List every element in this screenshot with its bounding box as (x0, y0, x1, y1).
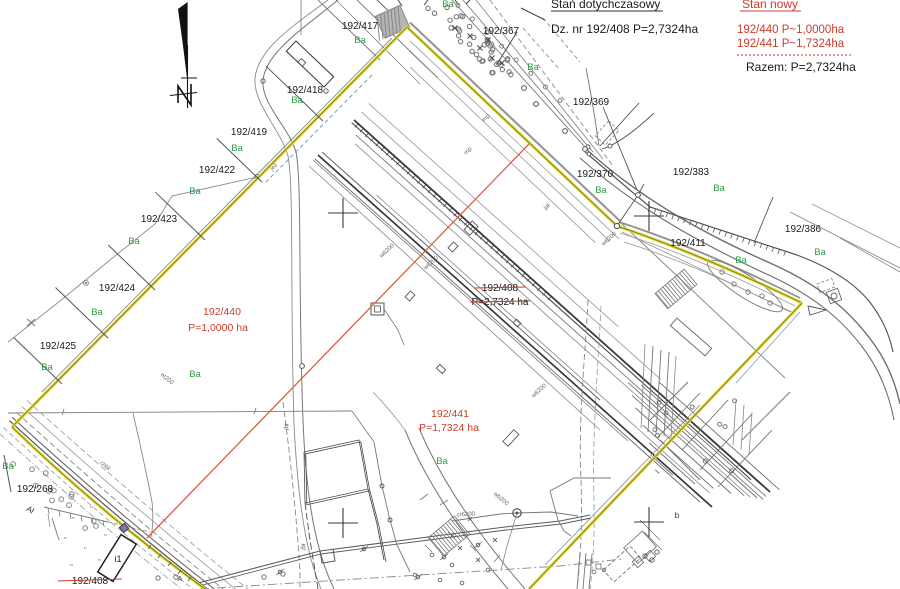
svg-text:192/408: 192/408 (482, 283, 519, 294)
svg-text:Ba: Ba (189, 369, 201, 380)
svg-text:P=2,7324 ha: P=2,7324 ha (472, 297, 529, 308)
svg-text:": " (98, 558, 101, 567)
svg-text:b: b (675, 511, 680, 520)
svg-text:": " (84, 546, 87, 555)
svg-text:P=1,7324 ha: P=1,7324 ha (419, 422, 479, 434)
svg-text:": " (104, 533, 107, 542)
svg-text:Ba: Ba (231, 143, 243, 154)
svg-text:Ba: Ba (41, 362, 53, 373)
svg-text:Stań dotychczasowy: Stań dotychczasowy (551, 0, 660, 11)
svg-text:": " (90, 505, 93, 514)
svg-text:Dz. nr 192/408 P=2,7324ha: Dz. nr 192/408 P=2,7324ha (551, 22, 698, 36)
svg-text:": " (70, 563, 73, 572)
svg-text:192/441: 192/441 (431, 408, 469, 420)
svg-text:192/370: 192/370 (577, 169, 614, 180)
svg-text:192/441 P~1,7324ha: 192/441 P~1,7324ha (737, 38, 845, 50)
svg-text:Ba: Ba (354, 35, 366, 46)
svg-text:Ba: Ba (595, 185, 607, 196)
svg-text:Ba: Ba (735, 255, 747, 266)
svg-text:Stan nowy: Stan nowy (742, 0, 798, 11)
svg-text:192/411: 192/411 (670, 238, 706, 249)
svg-text:192/369: 192/369 (573, 97, 610, 108)
svg-text:192/383: 192/383 (673, 167, 710, 178)
svg-text:Razem: P=2,7324ha: Razem: P=2,7324ha (746, 60, 856, 74)
svg-text:192/417: 192/417 (342, 21, 379, 32)
svg-text:192/419: 192/419 (231, 127, 268, 138)
svg-text:Ba: Ba (713, 183, 725, 194)
svg-text:Ba: Ba (2, 461, 14, 472)
svg-text:192/423: 192/423 (141, 214, 178, 225)
svg-text:Ba: Ba (442, 0, 454, 10)
svg-text:192/425: 192/425 (40, 341, 77, 352)
svg-text:": " (72, 516, 75, 525)
svg-text:Ba: Ba (814, 247, 826, 258)
svg-text:192/440 P~1,0000ha: 192/440 P~1,0000ha (737, 24, 845, 36)
svg-text:192/422: 192/422 (199, 165, 236, 176)
svg-text:192/440: 192/440 (203, 306, 241, 318)
svg-text:Ba: Ba (291, 95, 303, 106)
svg-text:192/424: 192/424 (99, 283, 136, 294)
svg-text:Ba: Ba (91, 307, 103, 318)
svg-text:Ba: Ba (527, 62, 539, 73)
svg-text:192/268: 192/268 (17, 484, 54, 495)
svg-text:Ba: Ba (189, 186, 201, 197)
svg-text:Ba: Ba (436, 456, 448, 467)
svg-text:Ba: Ba (128, 236, 140, 247)
svg-text:P=1,0000 ha: P=1,0000 ha (188, 322, 248, 334)
svg-text:192/386: 192/386 (785, 224, 822, 235)
svg-text:i1: i1 (114, 554, 121, 564)
svg-text:192/367: 192/367 (483, 26, 520, 37)
svg-text:192/408: 192/408 (72, 576, 109, 587)
svg-text:": " (64, 536, 67, 545)
